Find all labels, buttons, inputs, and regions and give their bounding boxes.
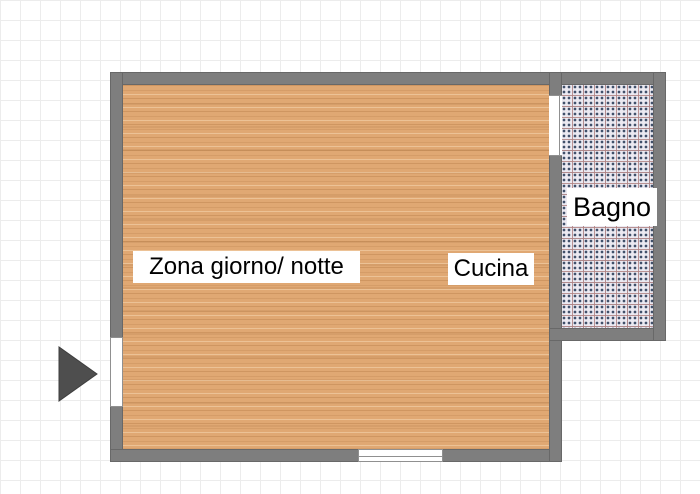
wall-bathroom-bottom[interactable] (549, 328, 666, 341)
room-label-zona-giorno-notte[interactable]: Zona giorno/ notte (133, 251, 360, 283)
bottom-window[interactable] (358, 449, 443, 462)
bagno-door[interactable] (549, 95, 562, 156)
room-label-bagno[interactable]: Bagno (567, 188, 657, 226)
room-label-cucina[interactable]: Cucina (448, 253, 534, 285)
entry-door[interactable] (110, 337, 123, 407)
wall-top[interactable] (110, 72, 666, 85)
floorplan-canvas: Zona giorno/ notte Cucina Bagno (0, 0, 700, 494)
entrance-arrow-icon[interactable] (58, 346, 98, 402)
wall-bottom[interactable] (110, 449, 562, 462)
